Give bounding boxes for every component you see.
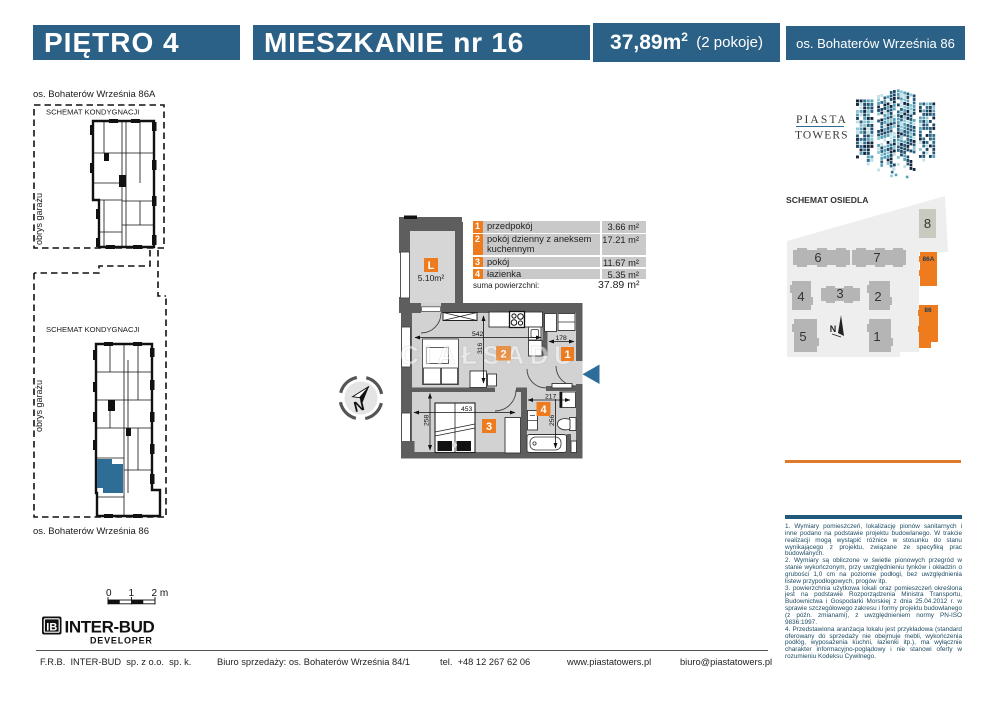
- svg-text:L: L: [428, 260, 435, 272]
- svg-text:453: 453: [461, 406, 473, 413]
- svg-text:256: 256: [549, 414, 556, 426]
- svg-text:178: 178: [556, 335, 568, 342]
- svg-text:CIAŁSADU: CIAŁSADU: [400, 340, 578, 370]
- svg-text:316: 316: [477, 342, 484, 354]
- svg-text:4: 4: [540, 404, 547, 416]
- svg-text:4: 4: [797, 289, 804, 304]
- svg-text:SCHEMAT OSIEDLA: SCHEMAT OSIEDLA: [786, 195, 868, 205]
- svg-text:os. Bohaterów Września 86A: os. Bohaterów Września 86A: [33, 89, 156, 100]
- svg-text:6: 6: [814, 250, 821, 265]
- svg-text:542: 542: [472, 331, 484, 338]
- svg-text:TOWERS: TOWERS: [795, 130, 849, 142]
- svg-text:86A: 86A: [923, 256, 935, 263]
- svg-text:INTER-BUD: INTER-BUD: [65, 618, 155, 637]
- svg-text:217: 217: [545, 394, 557, 401]
- svg-text:PIASTA: PIASTA: [796, 114, 848, 126]
- svg-text:5.10m²: 5.10m²: [418, 273, 445, 283]
- svg-text:8: 8: [924, 216, 931, 231]
- svg-text:SCHEMAT KONDYGNACJI: SCHEMAT KONDYGNACJI: [46, 108, 139, 117]
- svg-text:258: 258: [424, 414, 431, 426]
- svg-text:3: 3: [836, 286, 843, 301]
- svg-text:obrys garażu: obrys garażu: [34, 193, 44, 245]
- svg-text:7: 7: [873, 250, 880, 265]
- svg-text:os. Bohaterów Września 86: os. Bohaterów Września 86: [33, 526, 149, 537]
- svg-text:2: 2: [500, 349, 506, 361]
- svg-text:1: 1: [564, 349, 570, 361]
- svg-text:1: 1: [873, 329, 880, 344]
- svg-text:2: 2: [874, 289, 881, 304]
- svg-text:5: 5: [799, 329, 806, 344]
- svg-text:SCHEMAT KONDYGNACJI: SCHEMAT KONDYGNACJI: [46, 325, 139, 334]
- svg-text:86: 86: [924, 307, 932, 314]
- svg-text:IB: IB: [46, 622, 57, 634]
- svg-text:3: 3: [486, 421, 492, 433]
- svg-text:0: 0: [106, 588, 112, 599]
- svg-text:obrys garażu: obrys garażu: [34, 380, 44, 432]
- svg-text:N: N: [830, 324, 837, 334]
- svg-text:DEVELOPER: DEVELOPER: [90, 636, 153, 646]
- svg-text:2 m: 2 m: [152, 588, 169, 599]
